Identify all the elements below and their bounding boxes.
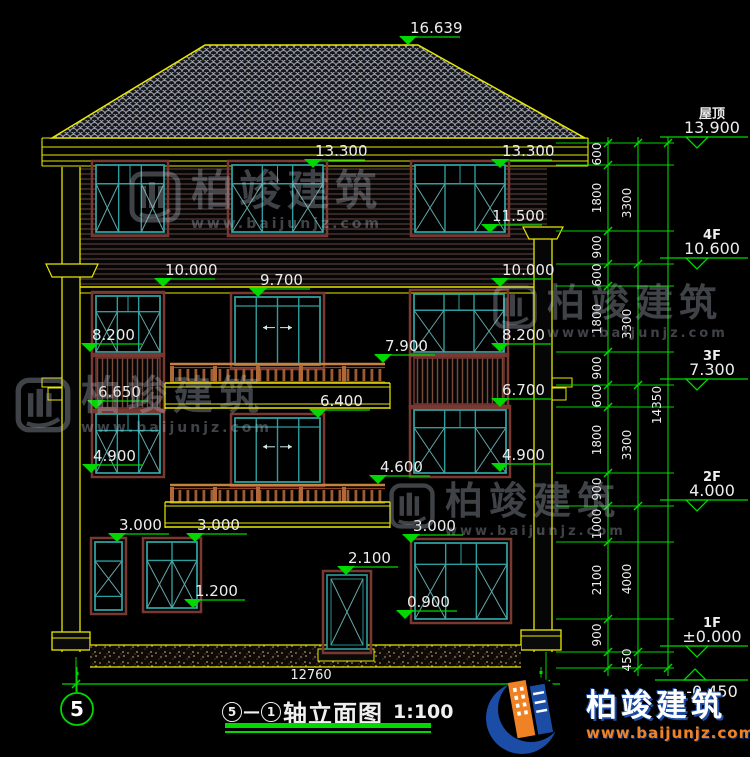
- title-dash: —: [243, 702, 260, 722]
- brand-logo-icon: [468, 676, 586, 756]
- brand-logo: 柏竣建筑 www.baijunjz.com: [468, 676, 750, 756]
- floor-elevation: 13.900: [684, 118, 740, 137]
- elevation-label: 10.000: [165, 261, 218, 279]
- dim-label: 600: [590, 385, 604, 408]
- elevation-label: 6.700: [502, 381, 545, 399]
- title-scale: 1:100: [393, 701, 453, 723]
- cad-elevation-sheet: 柏竣建筑 www.baijunjz.com: [0, 0, 750, 757]
- elevation-label: 8.200: [92, 326, 135, 344]
- elevation-label: 11.500: [492, 207, 545, 225]
- dim-label: 1800: [590, 183, 604, 214]
- elevation-label: 13.300: [315, 142, 368, 160]
- title-axis-start: 5: [222, 702, 242, 722]
- brand-name: 柏竣建筑: [586, 690, 750, 723]
- elevation-label: 0.900: [407, 593, 450, 611]
- elevation-label: 3.000: [119, 516, 162, 534]
- elevation-label: 7.900: [385, 337, 428, 355]
- brand-logo-text: 柏竣建筑 www.baijunjz.com: [586, 690, 750, 742]
- elevation-label: 8.200: [502, 326, 545, 344]
- dim-label: 900: [590, 624, 604, 647]
- elevation-label: 4.900: [502, 446, 545, 464]
- dim-label: 2100: [590, 565, 604, 596]
- elevation-label: 13.300: [502, 142, 555, 160]
- dim-label: 14350: [650, 386, 664, 424]
- floor-elevation: 4.000: [689, 481, 735, 500]
- dim-label: 1800: [590, 425, 604, 456]
- axis-number: 5: [70, 697, 84, 721]
- elevation-label: 2.100: [348, 549, 391, 567]
- dim-label: 600: [590, 264, 604, 287]
- title-underline-thick: [225, 723, 431, 728]
- elevation-label: 4.600: [380, 458, 423, 476]
- dim-label: 4000: [620, 564, 634, 595]
- dim-label: 600: [590, 143, 604, 166]
- elevation-label: 1.200: [195, 582, 238, 600]
- dim-label: 3300: [620, 309, 634, 340]
- elevation-label: 16.639: [410, 19, 463, 37]
- dim-label: 900: [590, 236, 604, 259]
- dim-label: 900: [590, 478, 604, 501]
- overall-width: 12760: [290, 668, 331, 683]
- elevation-label: 6.400: [320, 392, 363, 410]
- title-axis-end: 1: [261, 702, 281, 722]
- dim-label: 3300: [620, 188, 634, 219]
- title-underline-thin: [225, 731, 431, 733]
- dim-label: 900: [590, 357, 604, 380]
- elevation-label: 9.700: [260, 271, 303, 289]
- dim-label: 1000: [590, 509, 604, 540]
- elevation-label: 6.650: [98, 383, 141, 401]
- dim-label: 450: [620, 649, 634, 672]
- elevation-label: 4.900: [93, 447, 136, 465]
- floor-elevation: ±0.000: [682, 627, 741, 646]
- brand-site: www.baijunjz.com: [586, 724, 750, 742]
- dim-label: 3300: [620, 430, 634, 461]
- dim-label: 1800: [590, 304, 604, 335]
- elevation-label: 3.000: [197, 516, 240, 534]
- floor-elevation: 7.300: [689, 360, 735, 379]
- elevation-label: 10.000: [502, 261, 555, 279]
- floor-elevation: 10.600: [684, 239, 740, 258]
- elevation-label: 3.000: [413, 517, 456, 535]
- elevation-drawing: 屋顶13.9004F10.6003F7.3002F4.0001F±0.000-0…: [0, 0, 750, 757]
- windows: [91, 161, 511, 653]
